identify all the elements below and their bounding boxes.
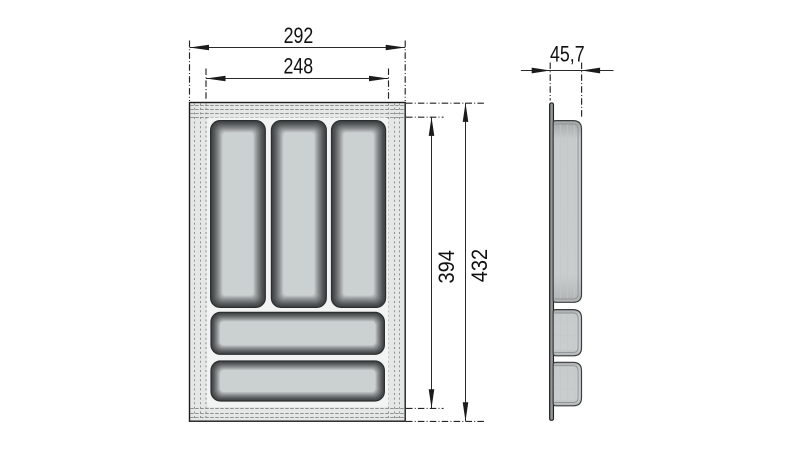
svg-text:45,7: 45,7 — [550, 43, 585, 67]
svg-text:292: 292 — [284, 24, 314, 48]
svg-text:394: 394 — [434, 250, 459, 284]
svg-text:248: 248 — [283, 55, 313, 79]
svg-text:432: 432 — [467, 249, 492, 282]
